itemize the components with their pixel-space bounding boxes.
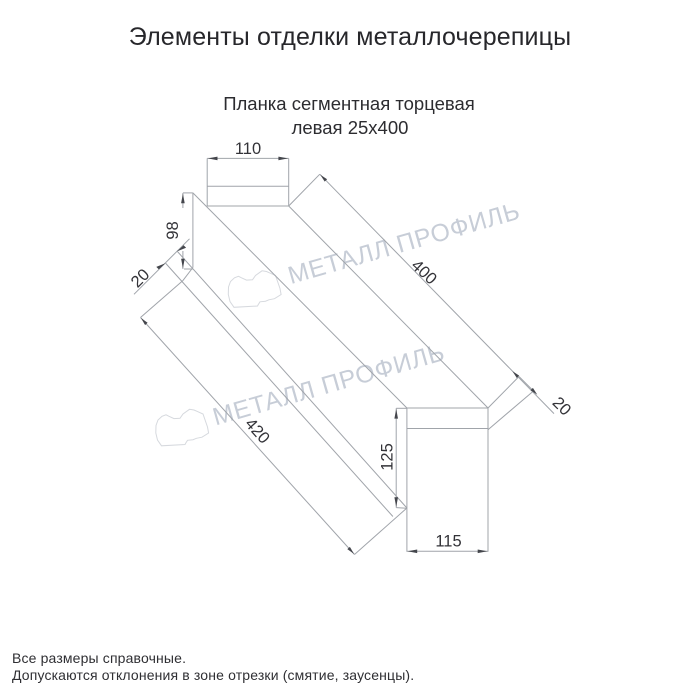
svg-text:20: 20 — [549, 394, 575, 420]
svg-text:125: 125 — [379, 443, 397, 471]
svg-text:МЕТАЛЛ ПРОФИЛЬ: МЕТАЛЛ ПРОФИЛЬ — [285, 198, 523, 290]
svg-text:98: 98 — [164, 221, 182, 239]
svg-text:115: 115 — [435, 533, 461, 551]
svg-text:110: 110 — [235, 140, 261, 158]
svg-text:20: 20 — [128, 266, 154, 292]
svg-text:400: 400 — [408, 256, 440, 288]
